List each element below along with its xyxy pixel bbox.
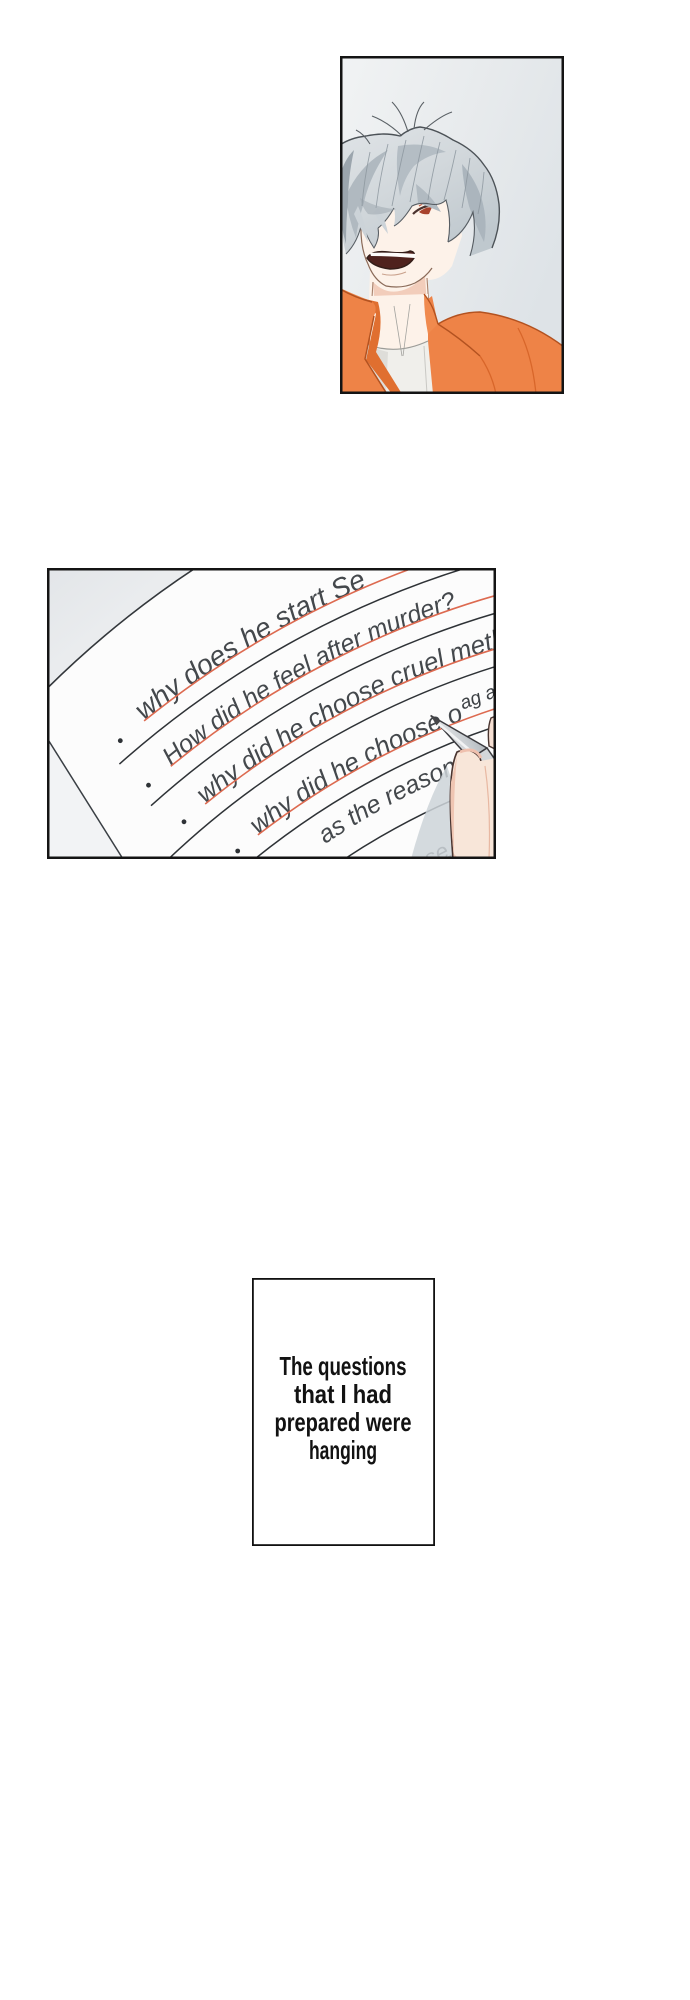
svg-text:that I had: that I had — [294, 1379, 392, 1409]
svg-text:prepared were: prepared were — [275, 1407, 412, 1437]
svg-text:The questions: The questions — [280, 1351, 407, 1381]
svg-text:hanging: hanging — [309, 1435, 377, 1465]
